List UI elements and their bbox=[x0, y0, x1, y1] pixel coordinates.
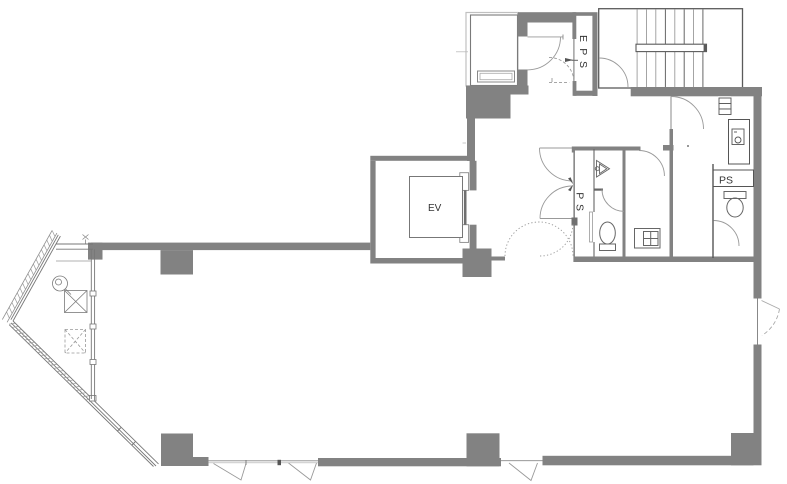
svg-text:P: P bbox=[577, 48, 589, 55]
svg-text:S: S bbox=[577, 61, 589, 68]
svg-text:S: S bbox=[573, 204, 585, 211]
svg-text:P: P bbox=[573, 192, 585, 199]
svg-text:E: E bbox=[577, 35, 589, 42]
svg-text:PS: PS bbox=[719, 175, 733, 187]
svg-text:EV: EV bbox=[428, 203, 442, 214]
